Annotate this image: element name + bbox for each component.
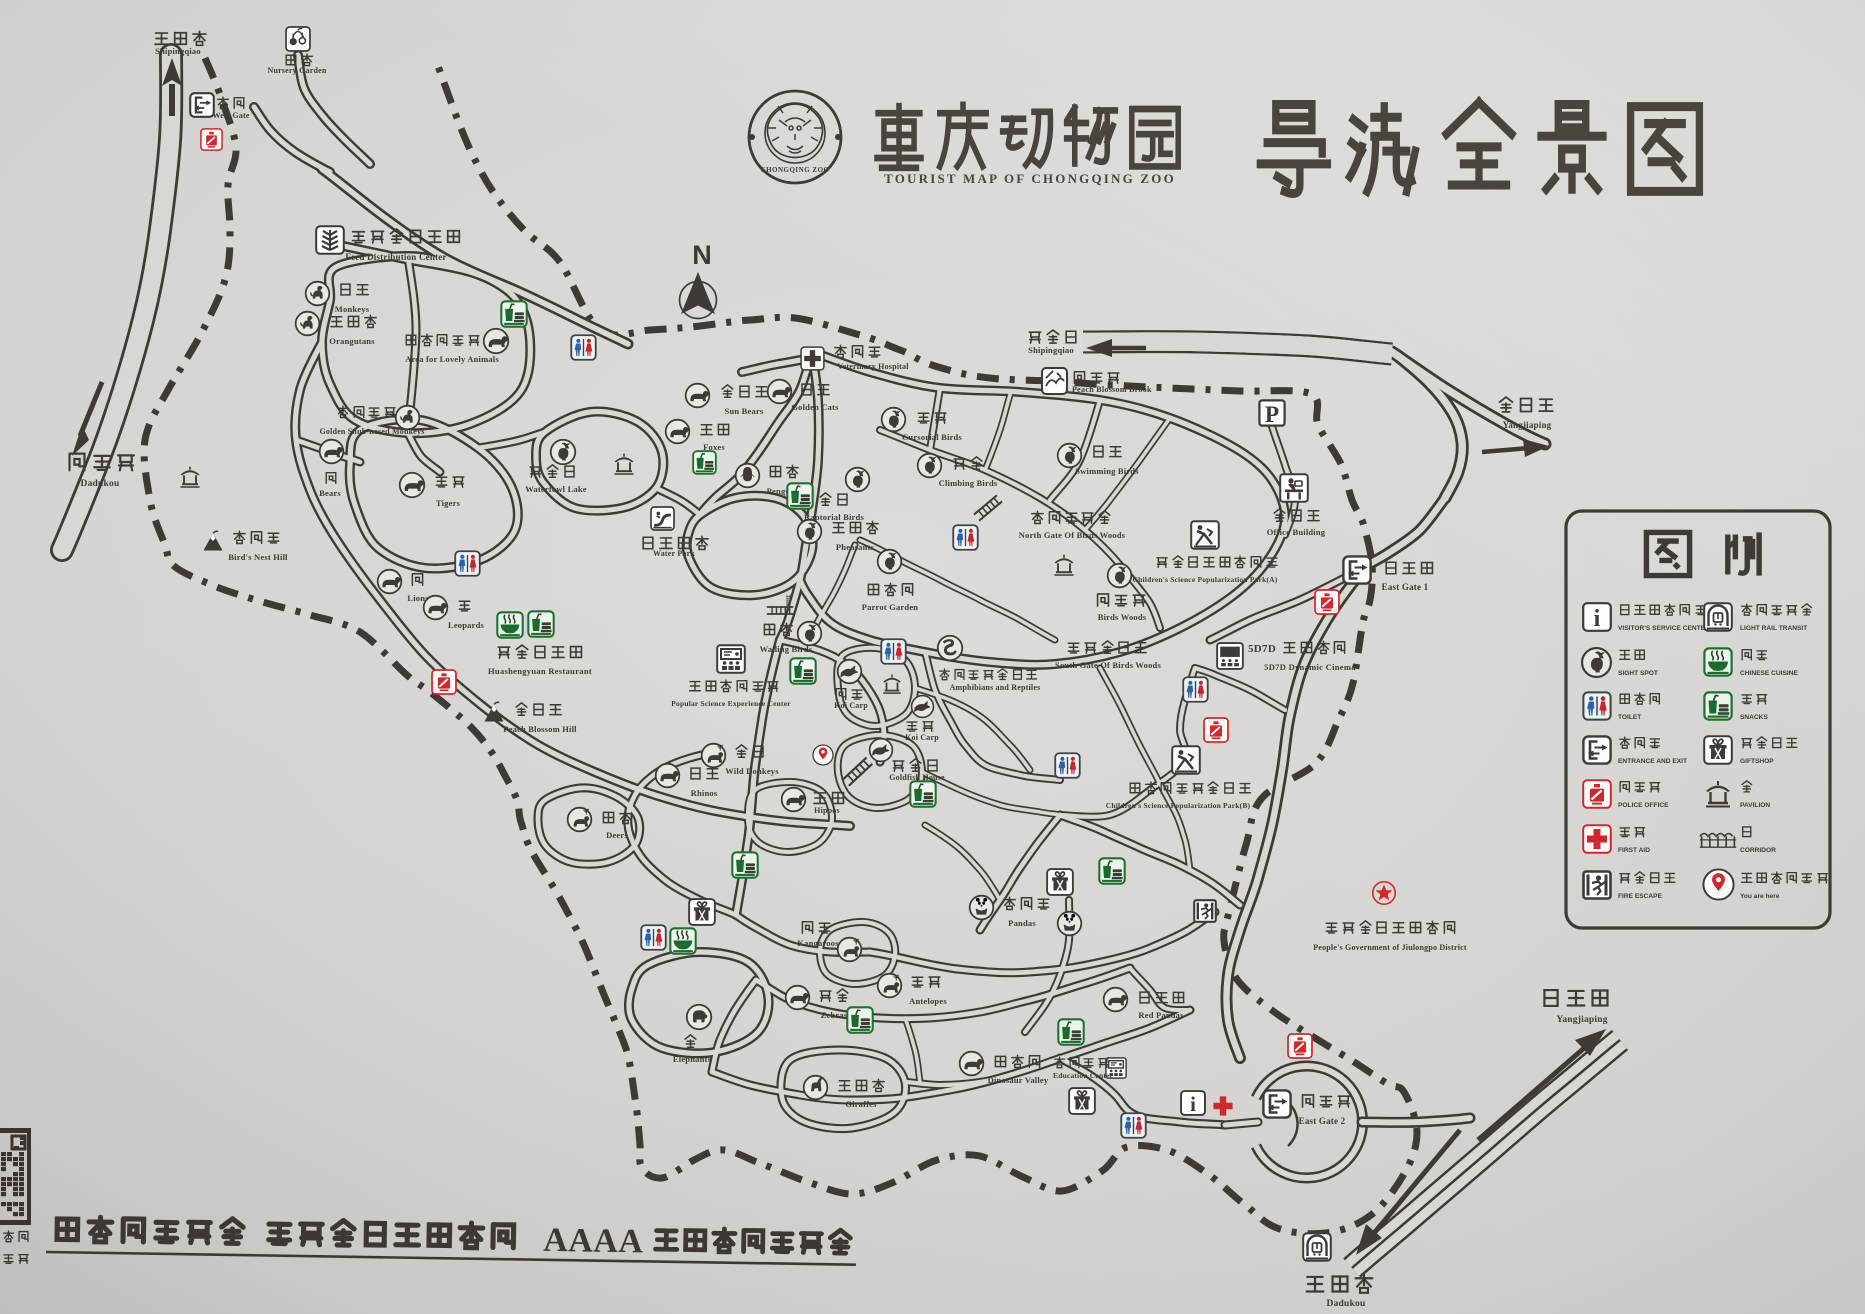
svg-text:Dinosaur Valley: Dinosaur Valley xyxy=(988,1075,1049,1085)
svg-text:Veterinary Hospital: Veterinary Hospital xyxy=(837,362,909,371)
svg-text:Pandas: Pandas xyxy=(1008,918,1036,928)
svg-text:GIFTSHOP: GIFTSHOP xyxy=(1740,758,1774,765)
svg-text:South Gate Of Birds Woods: South Gate Of Birds Woods xyxy=(1055,660,1161,670)
svg-text:Bird's Nest Hill: Bird's Nest Hill xyxy=(228,552,288,562)
svg-text:Area for Lovely Animals: Area for Lovely Animals xyxy=(405,354,499,364)
svg-text:Pheasants: Pheasants xyxy=(836,542,875,552)
svg-text:Dadukou: Dadukou xyxy=(1327,1299,1366,1309)
svg-text:Peach Blossom Brook: Peach Blossom Brook xyxy=(1072,385,1152,394)
svg-text:SNACKS: SNACKS xyxy=(1740,714,1768,721)
svg-text:Leopards: Leopards xyxy=(448,620,485,630)
svg-text:Kangaroos: Kangaroos xyxy=(797,938,839,948)
svg-text:POLICE OFFICE: POLICE OFFICE xyxy=(1618,802,1669,809)
svg-text:Wading Birds: Wading Birds xyxy=(760,644,813,654)
svg-text:Popular Science Experience Cen: Popular Science Experience Center xyxy=(671,699,791,708)
svg-text:Hippos: Hippos xyxy=(814,806,840,815)
svg-text:FIRST AID: FIRST AID xyxy=(1618,847,1650,854)
svg-text:LIGHT RAIL TRANSIT: LIGHT RAIL TRANSIT xyxy=(1740,625,1807,632)
svg-text:Education Center: Education Center xyxy=(1053,1071,1114,1080)
svg-text:Children's Science Popularizat: Children's Science Popularization Park(B… xyxy=(1106,801,1251,810)
svg-text:You are here: You are here xyxy=(1740,893,1780,900)
svg-text:Rhinos: Rhinos xyxy=(691,788,718,798)
svg-text:FIRE ESCAPE: FIRE ESCAPE xyxy=(1618,893,1663,900)
svg-text:Swimming Birds: Swimming Birds xyxy=(1075,466,1139,476)
svg-text:N: N xyxy=(692,240,712,270)
svg-text:Koi Carp: Koi Carp xyxy=(834,701,868,710)
svg-text:Amphibians and Reptiles: Amphibians and Reptiles xyxy=(950,683,1041,692)
svg-text:Parrot Garden: Parrot Garden xyxy=(862,602,919,612)
svg-text:PAVILION: PAVILION xyxy=(1740,802,1770,809)
svg-text:Shipingqiao: Shipingqiao xyxy=(155,46,201,56)
svg-text:Nursery Garden: Nursery Garden xyxy=(267,66,326,75)
svg-text:Waterfowl Lake: Waterfowl Lake xyxy=(525,484,587,494)
svg-text:CORRIDOR: CORRIDOR xyxy=(1740,847,1776,854)
svg-text:ENTRANCE AND EXIT: ENTRANCE AND EXIT xyxy=(1618,758,1687,765)
svg-text:Monkeys: Monkeys xyxy=(335,304,370,314)
svg-text:Koi Carp: Koi Carp xyxy=(905,733,939,742)
svg-text:TOILET: TOILET xyxy=(1618,714,1641,721)
svg-text:Yangjiaping: Yangjiaping xyxy=(1556,1015,1607,1025)
svg-text:CHONGQING ZOO: CHONGQING ZOO xyxy=(761,166,830,174)
svg-text:Golden Cats: Golden Cats xyxy=(791,402,839,412)
svg-text:Shipingqiao: Shipingqiao xyxy=(1028,345,1074,355)
svg-text:Children's Science Popularizat: Children's Science Popularization Park(A… xyxy=(1133,575,1278,584)
svg-text:VISITOR'S SERVICE CENTER: VISITOR'S SERVICE CENTER xyxy=(1618,625,1710,632)
svg-text:Golden Snub-nosed Monkeys: Golden Snub-nosed Monkeys xyxy=(319,427,424,436)
svg-text:AAAA: AAAA xyxy=(543,1222,644,1261)
svg-text:East Gate 1: East Gate 1 xyxy=(1382,582,1429,592)
svg-text:CHINESE CUISINE: CHINESE CUISINE xyxy=(1740,670,1798,677)
svg-text:North Gate Of Birds Woods: North Gate Of Birds Woods xyxy=(1019,530,1126,540)
svg-text:Giraffes: Giraffes xyxy=(845,1099,877,1109)
svg-text:Huashengyuan Restaurant: Huashengyuan Restaurant xyxy=(488,666,592,676)
svg-text:Wild Donkeys: Wild Donkeys xyxy=(725,766,779,776)
svg-text:Cursorial Birds: Cursorial Birds xyxy=(902,432,962,442)
svg-text:Birds Woods: Birds Woods xyxy=(1098,612,1147,622)
svg-text:People's Government of Jiulong: People's Government of Jiulongpo Distric… xyxy=(1313,943,1467,952)
svg-text:Sun Bears: Sun Bears xyxy=(725,406,764,416)
svg-text:Red Pandas: Red Pandas xyxy=(1138,1010,1184,1020)
svg-text:Climbing Birds: Climbing Birds xyxy=(939,478,998,488)
svg-text:5D7D: 5D7D xyxy=(1248,643,1276,655)
svg-text:Yangjiaping: Yangjiaping xyxy=(1503,420,1552,430)
svg-text:East Gate 2: East Gate 2 xyxy=(1299,1116,1346,1126)
svg-text:SIGHT SPOT: SIGHT SPOT xyxy=(1618,670,1658,677)
svg-text:Tigers: Tigers xyxy=(436,498,461,508)
svg-text:Bears: Bears xyxy=(319,488,341,498)
svg-text:Orangutans: Orangutans xyxy=(329,336,375,346)
svg-text:TOURIST MAP OF CHONGQING ZOO: TOURIST MAP OF CHONGQING ZOO xyxy=(884,171,1176,186)
svg-text:Office Building: Office Building xyxy=(1267,527,1326,537)
svg-text:Feed Distribution Center: Feed Distribution Center xyxy=(345,252,446,262)
svg-text:Peach Blossom Hill: Peach Blossom Hill xyxy=(503,724,577,734)
svg-text:Deers: Deers xyxy=(606,830,628,840)
svg-text:West Gate: West Gate xyxy=(212,111,249,120)
svg-text:Antelopes: Antelopes xyxy=(909,996,947,1006)
svg-text:5D7D Dynamic Cinema: 5D7D Dynamic Cinema xyxy=(1264,662,1356,672)
svg-text:Elephants: Elephants xyxy=(673,1054,712,1064)
svg-text:Zebras: Zebras xyxy=(821,1010,848,1020)
svg-text:Water Park: Water Park xyxy=(653,549,695,558)
svg-text:Dadukou: Dadukou xyxy=(81,479,120,489)
